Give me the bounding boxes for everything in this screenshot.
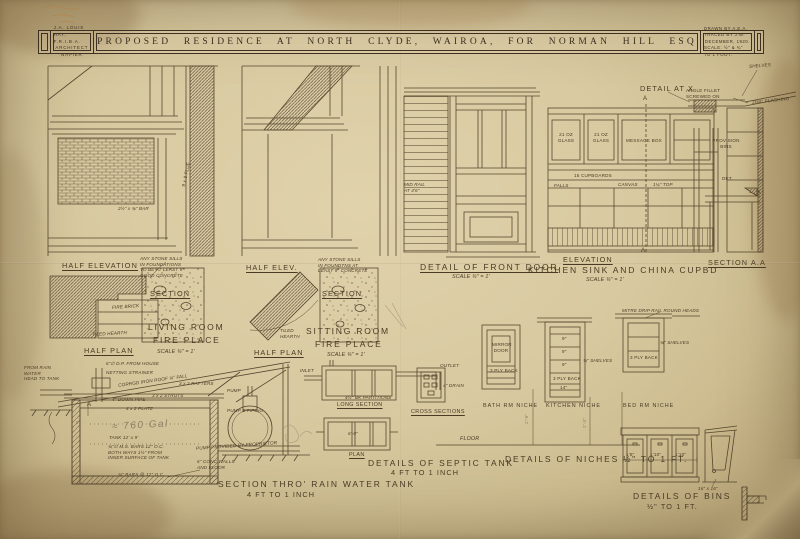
band-blank-right <box>754 30 764 54</box>
niche-mirror-label: MIRROR DOOR <box>492 342 510 353</box>
living-fireplace-elevation <box>48 66 218 256</box>
bed-niche-label: BED RM NICHE <box>623 403 674 410</box>
bins-dim-1: 1'8" <box>626 452 634 458</box>
tank-dim-5: 5' <box>76 420 80 426</box>
septic-dim-note: 6'-0" <box>348 431 358 437</box>
drawn-scale: SCALE: ½" & ¾" TO 1 FOOT. <box>704 45 751 58</box>
kitchen-top-label: 1¼" TOP <box>653 182 673 188</box>
septic-cross-sections-label: CROSS SECTIONS <box>411 409 465 416</box>
section-aa-x-marker: X <box>757 190 762 198</box>
tank-pump-pipe-note: PUMP & PIPING <box>227 408 263 414</box>
sheet-title-box: PROPOSED RESIDENCE AT NORTH CLYDE, WAIRO… <box>93 30 701 54</box>
tank-downpipe-note: 4" DOWN PIPE <box>112 397 146 403</box>
niche-ply-bed-label: 3 PLY BACK <box>630 355 658 361</box>
niche-height-dim-1: 2'-9" <box>524 414 530 424</box>
niche-depth-dim: 14" <box>560 385 567 391</box>
tank-strainer-note: NETTING STRAINER <box>106 370 153 376</box>
crayon-corner-note <box>44 6 80 23</box>
bins-title: DETAILS OF BINS <box>633 491 731 502</box>
front-door-detail <box>404 88 540 257</box>
drawing-sheet: J.A. LOUIS HAY, F.R.I.B.A. ARCHITECT NAP… <box>0 0 800 539</box>
tank-dp-note: 6"∅ D.P. FROM HOUSE <box>106 361 159 367</box>
tank-scale: 4 FT TO 1 INCH <box>247 490 315 499</box>
septic-drain-note: 4" DRAIN <box>443 383 464 389</box>
kitchen-scale-label: SCALE ¾" = 1' <box>586 277 624 284</box>
sitting-fireplace-elevation <box>242 66 396 256</box>
tank-pump-label: PUMP <box>227 388 241 394</box>
kitchen-glass-left-label: 21 OZ GLASS <box>554 132 578 143</box>
sitting-half-elev-label: HALF ELEV. <box>246 263 298 272</box>
tank-bars2-note: ¾" BARS @ 12" O.C. <box>118 472 165 478</box>
drawn-by: DRAWN BY A.E.A. TRACED BY J.W. <box>704 26 751 39</box>
bath-niche-label: BATH RM NICHE <box>483 403 538 410</box>
kitchen-elevation-label: ELEVATION <box>563 255 613 264</box>
tank-rafters-note: 3 x 2 RAFTERS <box>179 381 214 387</box>
bins-dim-3: 1'10" <box>675 452 686 458</box>
sitting-half-plan-label: HALF PLAN <box>254 348 304 357</box>
sitting-scale-label: SCALE ¾" = 1' <box>327 352 365 359</box>
niche-height-dim-2: 2'-3" <box>582 418 588 428</box>
tank-plate-note: 4 x 2 PLATE <box>126 406 153 412</box>
sitting-room-title-1: SITTING ROOM <box>306 326 390 337</box>
septic-long-section-label: LONG SECTION <box>337 402 383 409</box>
front-door-scale: SCALE ¾" = 1' <box>452 274 490 281</box>
living-half-elevation-label: HALF ELEVATION <box>62 261 138 270</box>
niche-shelf-dim-1: 9" <box>562 336 567 342</box>
architect-name: J.A. LOUIS HAY, F.R.I.B.A. <box>54 25 91 45</box>
sitting-stone-note: ANY STONE SILLS IN FOUNDTNS AT LEAST 9" … <box>318 257 372 274</box>
bins-dim-2: 1'10" <box>650 452 661 458</box>
septic-outlet-note: OUTLET <box>440 363 459 369</box>
kitchen-canvas-label: CANVAS <box>618 182 638 188</box>
niche-shelves-bed-note: ¾" SHELVES <box>660 340 689 346</box>
living-room-title-1: LIVING ROOM <box>148 322 224 333</box>
living-bar-label: 2½" x ¾" BAR <box>118 206 149 212</box>
kitchen-elevation <box>548 104 714 254</box>
drawn-box: DRAWN BY A.E.A. TRACED BY J.W. DECEMBER,… <box>700 30 755 54</box>
kitchen-message-box-label: MESSAGE BOX <box>626 138 662 144</box>
bins-size-note: 16" x 16" <box>698 486 718 492</box>
septic-inlet-note: INLET <box>300 368 314 374</box>
kitchen-falls-label: FALLS <box>554 183 568 189</box>
detail-x-angle-fillet-label: ANGLE FILLET SCREWED ON <box>686 88 720 99</box>
sheet-title: PROPOSED RESIDENCE AT NORTH CLYDE, WAIRO… <box>97 37 697 47</box>
tank-dim-6: 6' <box>74 452 78 458</box>
niche-shelf-dim-2: 9" <box>562 349 567 355</box>
tank-dimension-note: TANK 12' x 9' <box>109 435 138 441</box>
kitchen-niche-label: KITCHEN NICHE <box>546 403 601 410</box>
tank-title: SECTION THRO' RAIN WATER TANK <box>218 479 415 490</box>
tank-a-marker: A <box>87 402 92 410</box>
niche-ply-kitchen-label: 3 PLY BACK <box>553 376 581 382</box>
septic-scale: 4 FT TO 1 INCH <box>391 468 459 477</box>
architect-box: J.A. LOUIS HAY, F.R.I.B.A. ARCHITECT NAP… <box>50 30 95 54</box>
title-band: J.A. LOUIS HAY, F.R.I.B.A. ARCHITECT NAP… <box>38 30 764 54</box>
front-door-mid-rail-note: MID RAIL AT 4'6" <box>404 182 425 193</box>
bins-scale: ½" TO 1 FT. <box>647 502 698 511</box>
tank-inlet-note: FROM RAIN WATER HEAD TO TANK <box>24 365 68 382</box>
niche-ply-bath-label: 3 PLY BACK <box>490 368 518 374</box>
sitting-room-title-2: FIRE PLACE <box>315 339 383 350</box>
sitting-tiled-hearth-label: TILED HEARTH <box>280 328 300 339</box>
niche-drip-rail-note: MITRE DRIP RAIL ROUND HEADS <box>622 308 699 314</box>
septic-plan-label: PLAN <box>349 452 365 459</box>
architect-role: ARCHITECT <box>55 45 88 52</box>
tank-struts-note: 3 x 2 STRUTS <box>152 393 183 399</box>
kitchen-a-marker-top: A <box>643 96 648 104</box>
kitchen-glass-right-label: 21 OZ GLASS <box>589 132 613 143</box>
section-aa-det-label: DET. <box>722 176 733 182</box>
living-scale-label: SCALE ¾" = 1' <box>157 349 195 356</box>
niche-shelf-dim-3: 9" <box>562 362 567 368</box>
living-section-label: SECTION <box>150 289 190 298</box>
living-half-plan-label: HALF PLAN <box>84 346 134 355</box>
septic-partitions-note: 4½" BK PARTITIONS <box>345 395 391 401</box>
kitchen-cupboards-label: 15 CUPBOARDS <box>574 173 612 179</box>
living-room-title-2: FIRE PLACE <box>153 335 221 346</box>
architect-city: NAPIER <box>61 52 83 59</box>
kitchen-title: KITCHEN SINK AND CHINA CUPBD <box>528 265 718 276</box>
niche-shelves-kitchen-note: ¾" SHELVES <box>583 358 612 364</box>
section-aa-provision-label: PROVISION BINS <box>712 138 740 149</box>
section-aa-title: SECTION A.A <box>708 258 766 267</box>
tank-concrete-note: 6" CONC WALLS AND FLOOR <box>197 459 235 470</box>
kitchen-a-marker-bottom: A <box>641 248 646 256</box>
niches-floor-label: FLOOR <box>460 436 479 443</box>
living-stone-note: ANY STONE SILLS IN FOUNDATIONS TO BE AT … <box>140 256 198 279</box>
sitting-section-label: SECTION <box>322 289 362 298</box>
tank-bars-note: ¾"∅ M.S. BARS 12" O.C. BOTH WAYS 1½" FRO… <box>108 444 169 461</box>
